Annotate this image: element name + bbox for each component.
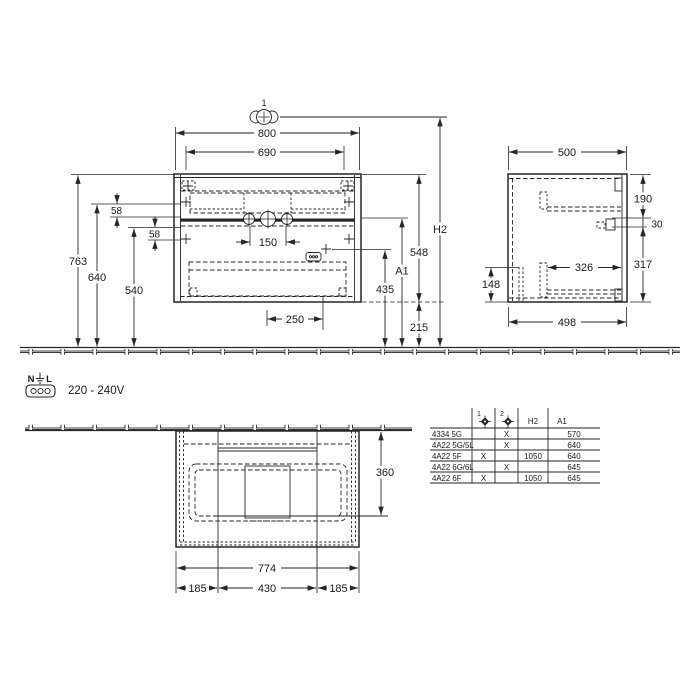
washbasin-outline bbox=[189, 464, 347, 521]
dim-150: 150 bbox=[259, 237, 277, 249]
wall-hatch bbox=[25, 425, 412, 431]
table-row: 4A22 5F X 1050 640 bbox=[432, 452, 581, 461]
a1-cell: 640 bbox=[567, 441, 581, 450]
side-cabinet-structure bbox=[508, 174, 627, 302]
line-label: L bbox=[46, 374, 52, 385]
pos1-cell: X bbox=[481, 474, 487, 483]
dim-500: 500 bbox=[558, 147, 576, 159]
a1-cell: 570 bbox=[567, 430, 581, 439]
dim-185-right: 185 bbox=[329, 583, 347, 595]
dim-326: 326 bbox=[575, 262, 593, 274]
pos1-cell: X bbox=[481, 452, 487, 461]
plan-cabinet-structure bbox=[176, 431, 388, 593]
a1-cell: 645 bbox=[567, 474, 581, 483]
socket-icon bbox=[306, 253, 321, 262]
dim-360: 360 bbox=[376, 467, 394, 479]
front-view: 1 800 690 bbox=[64, 98, 452, 347]
dim-250: 250 bbox=[286, 314, 304, 326]
plan-view: 360 774 185 430 185 bbox=[25, 425, 412, 595]
dim-58-lower: 58 bbox=[149, 230, 161, 241]
dim-774: 774 bbox=[258, 563, 276, 575]
table-rows: 4334 5G X 570 4A22 5G/5L X 640 4A22 5F X… bbox=[432, 430, 581, 483]
dim-215: 215 bbox=[410, 322, 428, 334]
dim-148: 148 bbox=[482, 279, 500, 291]
dim-640: 640 bbox=[88, 272, 106, 284]
table-header: 1 2 H2 A1 bbox=[477, 411, 567, 428]
dim-690: 690 bbox=[258, 147, 276, 159]
drain-box bbox=[245, 466, 290, 518]
table-row: 4A22 6F X 1050 645 bbox=[432, 474, 581, 483]
variant-table: 1 2 H2 A1 4334 5G X 570 4A22 5G/5L X 640 bbox=[430, 408, 600, 483]
a1-column-header: A1 bbox=[557, 417, 567, 426]
table-row: 4A22 5G/5L X 640 bbox=[432, 441, 581, 450]
neutral-label: N bbox=[28, 374, 35, 385]
model-cell: 4A22 6G/6L bbox=[432, 463, 474, 472]
dim-540: 540 bbox=[125, 285, 143, 297]
dim-A1: A1 bbox=[395, 266, 408, 278]
callout-1-label: 1 bbox=[261, 98, 266, 108]
front-dimension-lines: 800 690 763 640 540 58 58 150 bbox=[64, 118, 452, 347]
dim-30: 30 bbox=[651, 220, 663, 231]
model-cell: 4A22 5F bbox=[432, 452, 462, 461]
dim-H2: H2 bbox=[433, 224, 447, 236]
dim-498: 498 bbox=[558, 317, 576, 329]
pos2-cell: X bbox=[504, 463, 510, 472]
h2-cell: 1050 bbox=[524, 452, 542, 461]
table-row: 4334 5G X 570 bbox=[432, 430, 581, 439]
h2-column-header: H2 bbox=[528, 417, 539, 426]
pos2-cell: X bbox=[504, 441, 510, 450]
floor-hatch bbox=[20, 348, 680, 355]
earth-ground-icon bbox=[36, 373, 44, 384]
tap-hole-circles-icon bbox=[243, 210, 293, 229]
dim-435: 435 bbox=[376, 284, 394, 296]
tap-holes-callout-icon bbox=[250, 110, 447, 125]
dim-58-upper: 58 bbox=[111, 206, 123, 217]
dim-763: 763 bbox=[69, 256, 87, 268]
dim-317: 317 bbox=[634, 259, 652, 271]
col1-number: 1 bbox=[477, 411, 481, 418]
cable-notch bbox=[606, 219, 615, 230]
h2-cell: 1050 bbox=[524, 474, 542, 483]
dim-800: 800 bbox=[258, 128, 276, 140]
dim-548: 548 bbox=[410, 247, 428, 259]
plan-dimension-lines: 360 774 185 430 185 bbox=[177, 432, 399, 595]
dim-190: 190 bbox=[634, 194, 652, 206]
dim-430: 430 bbox=[258, 583, 276, 595]
table-row: 4A22 6G/6L X 645 bbox=[432, 463, 581, 472]
col2-number: 2 bbox=[500, 411, 504, 418]
side-view: 500 498 190 30 317 148 326 bbox=[477, 146, 667, 329]
model-cell: 4A22 5G/5L bbox=[432, 441, 474, 450]
technical-drawing-page: 1 800 690 bbox=[0, 0, 700, 700]
pos2-cell: X bbox=[504, 430, 510, 439]
dim-185-left: 185 bbox=[188, 583, 206, 595]
electrical-connection: N L 220 - 240V bbox=[26, 373, 125, 398]
model-cell: 4A22 6F bbox=[432, 474, 462, 483]
model-cell: 4334 5G bbox=[432, 430, 462, 439]
socket-terminal-icon bbox=[26, 385, 55, 397]
a1-cell: 645 bbox=[567, 463, 581, 472]
a1-cell: 640 bbox=[567, 452, 581, 461]
voltage-label: 220 - 240V bbox=[68, 385, 125, 397]
vanity-installation-drawing: 1 800 690 bbox=[0, 0, 700, 700]
